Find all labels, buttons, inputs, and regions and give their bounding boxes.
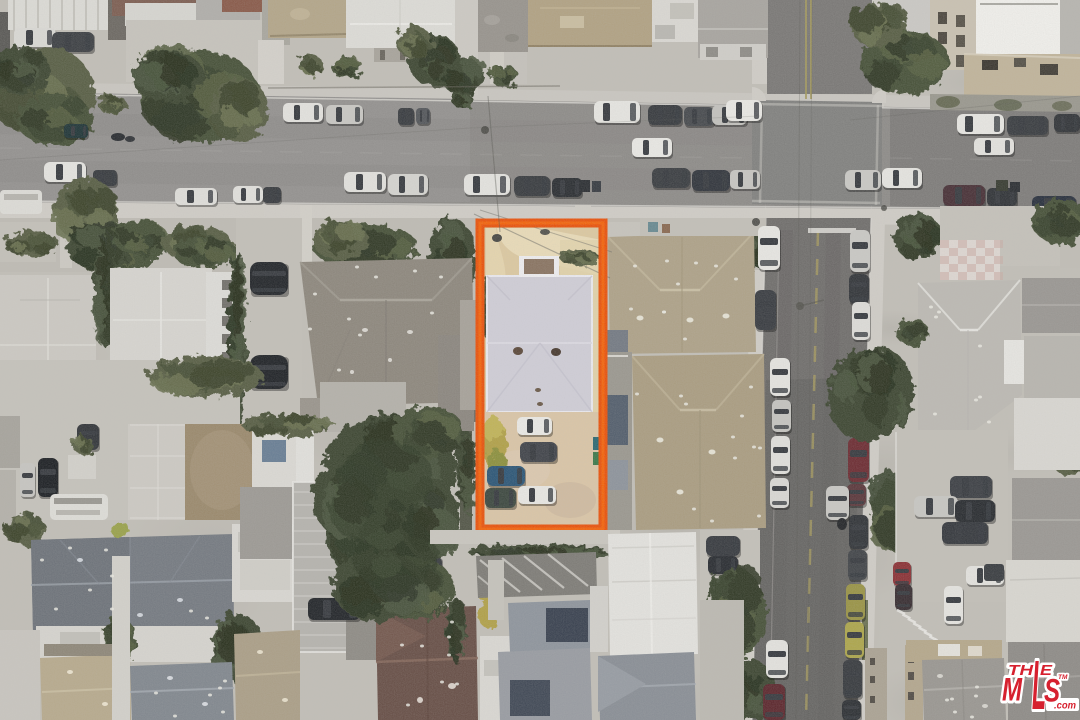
svg-text:M: M — [1002, 672, 1023, 708]
svg-text:TM: TM — [1058, 674, 1068, 681]
svg-text:.com: .com — [1054, 700, 1076, 712]
svg-text:L: L — [1032, 646, 1046, 720]
